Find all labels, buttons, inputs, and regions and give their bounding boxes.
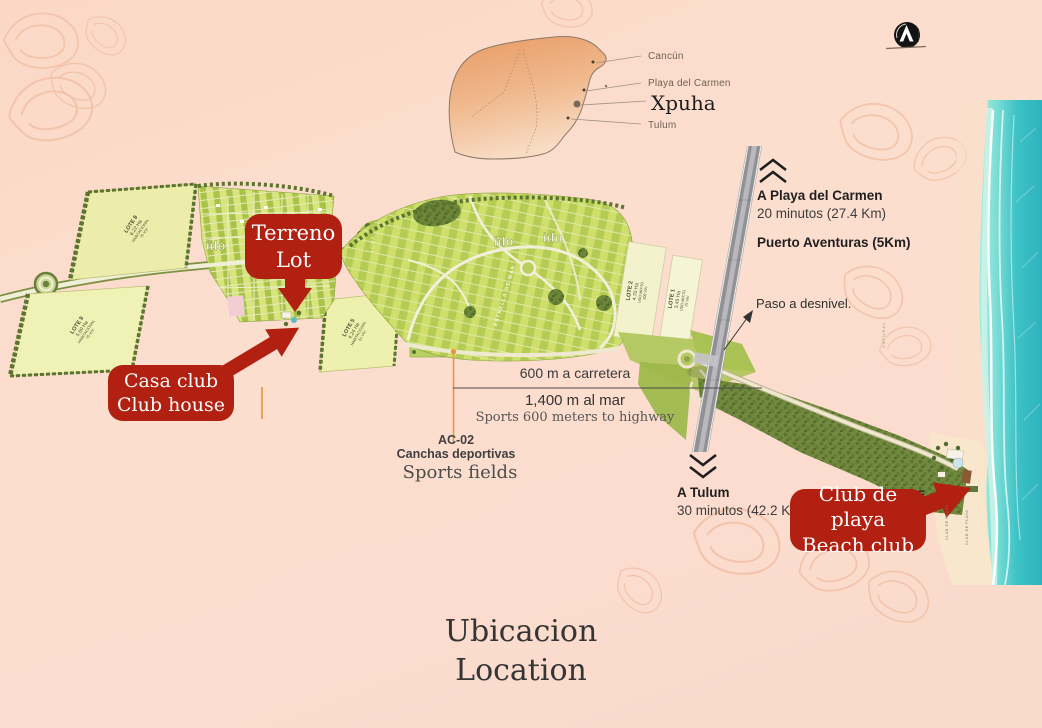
- callout-beach-line2: Beach club: [802, 533, 914, 559]
- callout-terreno-line2: Lot: [276, 247, 311, 274]
- watermark-1: ido: [206, 238, 226, 253]
- inset-peninsula-map: [449, 36, 646, 159]
- beach-label-1: CLUB DE PLAYA: [945, 505, 949, 540]
- callout-casa-club: Casa club Club house: [108, 365, 234, 421]
- natural-label: NATURAL: [881, 321, 886, 348]
- north-title: A Playa del Carmen: [757, 187, 911, 205]
- location-map-page: LOTE 8 6.22 Ha HABITACIONAL 75 VIV LOTE …: [0, 0, 1042, 728]
- sports-name-es: Canchas deportivas: [380, 447, 532, 461]
- south-direction-block: A Tulum 30 minutos (42.2 Km): [677, 484, 806, 519]
- paso-desnivel-label: Paso a desnivel.: [756, 296, 851, 311]
- south-time: 30 minutos (42.2 Km): [677, 502, 806, 520]
- sports-code-block: AC-02 Canchas deportivas: [380, 433, 532, 462]
- beach-label-2: CLUB DE PLAYA: [965, 510, 969, 545]
- callout-beach-line1: Club de playa: [790, 482, 926, 533]
- watermark-3: ido: [543, 230, 563, 245]
- north-direction-block: A Playa del Carmen 20 minutos (27.4 Km) …: [757, 187, 911, 252]
- distance-to-highway: 600 m a carretera: [455, 365, 695, 381]
- inset-label-tulum: Tulum: [648, 120, 676, 131]
- title-es: Ubicacion: [0, 617, 1042, 647]
- brand-logo: [886, 22, 926, 49]
- callout-beach-club: Club de playa Beach club: [790, 489, 926, 551]
- page-title: Ubicacion Location: [0, 617, 1042, 686]
- inset-label-cancun: Cancún: [648, 51, 684, 62]
- road-label-loma: LOMA: [370, 235, 376, 252]
- west-roundabout: [35, 273, 57, 295]
- north-time: 20 minutos (27.4 Km): [757, 205, 911, 223]
- distance-to-sea: 1,400 m al mar: [455, 392, 695, 409]
- callout-casa-line2: Club house: [117, 393, 225, 417]
- sports-name-en: Sports fields: [378, 462, 542, 483]
- puerto-aventuras: Puerto Aventuras (5Km): [757, 234, 911, 252]
- sports-code: AC-02: [380, 433, 532, 447]
- south-title: A Tulum: [677, 484, 806, 502]
- inset-label-xpuha: Xpuha: [651, 91, 716, 115]
- watermark-2: ido: [494, 234, 514, 249]
- chevron-down-icon: [687, 452, 719, 481]
- callout-casa-line1: Casa club: [124, 369, 218, 393]
- distance-note: Sports 600 meters to highway: [446, 410, 704, 425]
- callout-terreno-lot: Terreno Lot: [245, 214, 342, 279]
- inset-label-playa: Playa del Carmen: [648, 78, 731, 89]
- chevron-up-icon: [757, 157, 789, 186]
- title-en: Location: [0, 656, 1042, 686]
- callout-terreno-line1: Terreno: [252, 220, 335, 247]
